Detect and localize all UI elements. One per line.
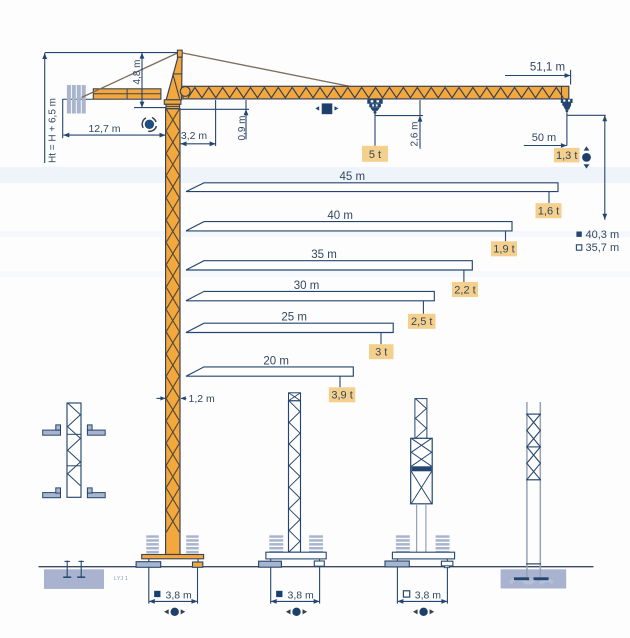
- svg-text:25 m: 25 m: [281, 312, 307, 324]
- svg-text:35,7 m: 35,7 m: [586, 242, 620, 254]
- svg-text:30 m: 30 m: [294, 280, 320, 292]
- svg-text:5 t: 5 t: [369, 149, 381, 161]
- svg-text:2,2 t: 2,2 t: [454, 284, 475, 296]
- svg-text:3,8 m: 3,8 m: [166, 589, 193, 601]
- svg-text:2,5 t: 2,5 t: [411, 316, 432, 328]
- svg-text:3,9 t: 3,9 t: [331, 390, 352, 402]
- svg-text:1,6 t: 1,6 t: [538, 206, 559, 218]
- svg-text:45 m: 45 m: [340, 171, 366, 183]
- svg-text:4,8 m: 4,8 m: [132, 59, 143, 84]
- svg-text:Ht = H + 6,5 m: Ht = H + 6,5 m: [47, 98, 58, 163]
- svg-text:20 m: 20 m: [263, 355, 289, 367]
- svg-text:12,7 m: 12,7 m: [88, 123, 120, 135]
- svg-text:35 m: 35 m: [311, 249, 337, 261]
- svg-text:3,2 m: 3,2 m: [181, 130, 208, 142]
- svg-text:2,6 m: 2,6 m: [410, 121, 421, 146]
- svg-text:1,9 t: 1,9 t: [493, 244, 514, 256]
- svg-text:3,8 m: 3,8 m: [288, 589, 315, 601]
- svg-text:1,2 m: 1,2 m: [189, 393, 216, 405]
- svg-text:50 m: 50 m: [532, 132, 556, 144]
- svg-text:40 m: 40 m: [327, 210, 353, 222]
- svg-text:3,8 m: 3,8 m: [415, 589, 442, 601]
- svg-text:1,3 t: 1,3 t: [556, 150, 577, 162]
- svg-text:51,1 m: 51,1 m: [530, 62, 565, 74]
- svg-text:0,9 m: 0,9 m: [237, 115, 248, 140]
- svg-text:40,3 m: 40,3 m: [586, 229, 620, 241]
- svg-text:LYJ 1: LYJ 1: [114, 576, 128, 582]
- svg-text:3 t: 3 t: [375, 347, 387, 359]
